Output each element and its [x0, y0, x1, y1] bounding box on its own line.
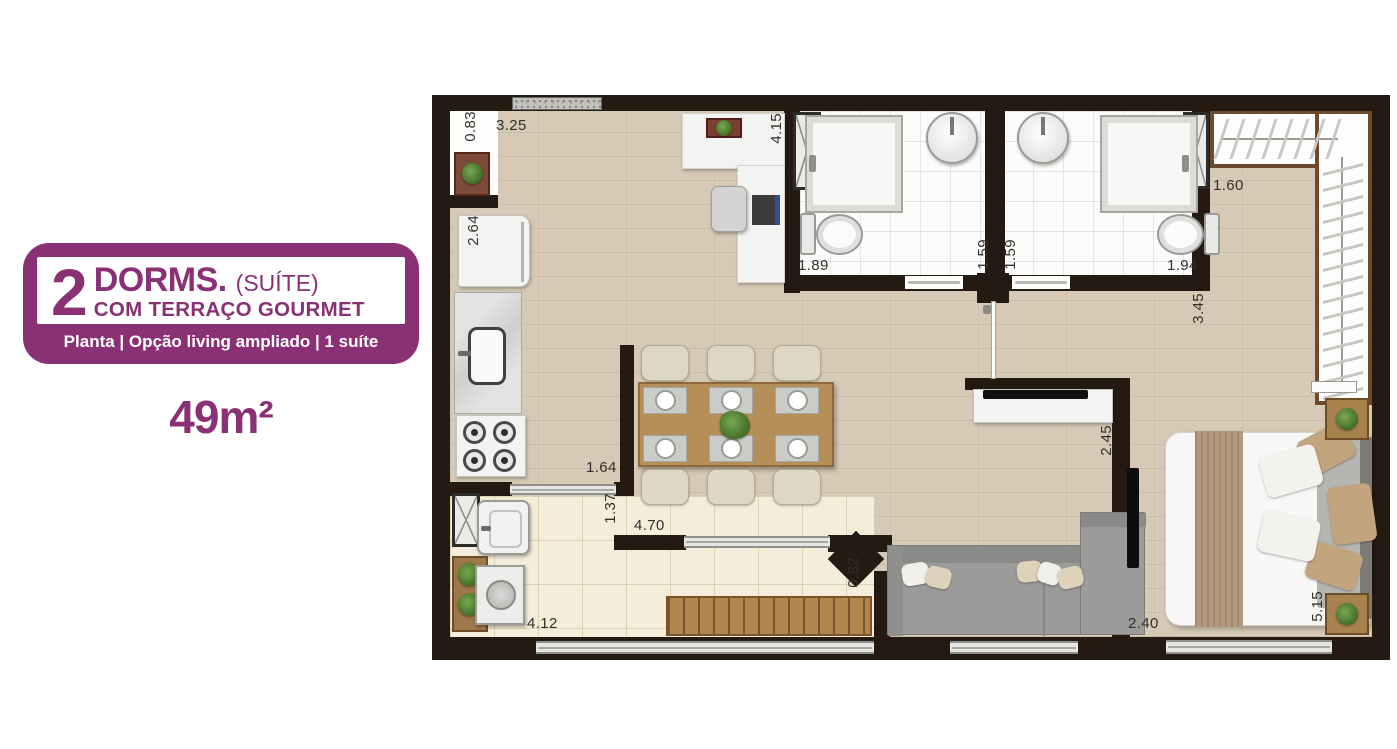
kitchen-faucet-icon	[458, 351, 471, 356]
dimension-label: 4.12	[527, 615, 558, 632]
bathroom-2-door	[1012, 276, 1070, 289]
closet-hangers-right-icon	[1323, 152, 1363, 400]
dimension-label: 3.25	[496, 117, 527, 134]
wall-right	[1372, 95, 1390, 660]
toilet-2-tank	[1204, 213, 1220, 255]
kitchen-sink	[468, 327, 506, 385]
sink-2-faucet-icon	[1041, 117, 1045, 135]
shaft-terrace-icon	[452, 493, 480, 547]
badge-title-box: 2 DORMS. (SUÍTE) COM TERRAÇO GOURMET	[37, 257, 405, 324]
dimension-label: 1.89	[798, 257, 829, 274]
dimension-label: 1.60	[1213, 177, 1244, 194]
wall-entry-stub	[432, 195, 498, 208]
shower-2-head-icon	[1182, 155, 1189, 172]
suite-door-handle-icon	[983, 305, 991, 314]
place-setting	[709, 435, 753, 462]
bed-runner	[1195, 431, 1243, 627]
shower-1	[805, 115, 903, 213]
floor-plan: 0.83 3.25 2.64 4.15 1.89 1.59 1.59 1.94 …	[432, 95, 1390, 660]
dimension-label: 4.70	[634, 517, 665, 534]
entry-door-threshold	[512, 97, 602, 110]
badge-caption: Planta | Opção living ampliado | 1 suíte	[37, 324, 405, 354]
nightstand-plant-icon	[1336, 408, 1358, 430]
place-setting	[643, 387, 687, 414]
table-centerpiece-icon	[720, 411, 750, 439]
badge-title-line2: COM TERRAÇO GOURMET	[94, 299, 365, 321]
kitchen-terrace-window	[510, 484, 616, 495]
wall-hall-pillar	[977, 273, 1009, 303]
closet-hangers-top-icon	[1214, 119, 1345, 159]
nightstand-plant-icon	[1336, 603, 1358, 625]
desk-plant-icon	[716, 120, 732, 136]
dorms-count: 2	[51, 264, 86, 320]
badge-title-line1: DORMS. (SUÍTE)	[94, 263, 365, 299]
living-terrace-slider	[684, 536, 830, 548]
toilet-2-bowl	[1157, 214, 1204, 255]
tv-living-icon	[983, 390, 1088, 399]
info-panel: 2 DORMS. (SUÍTE) COM TERRAÇO GOURMET Pla…	[23, 243, 419, 444]
area-label: 49m²	[23, 390, 419, 444]
wall-left	[432, 95, 450, 660]
dimension-label: 4.15	[768, 113, 785, 144]
laptop	[752, 195, 780, 225]
place-setting	[775, 435, 819, 462]
bedroom-bottom-window	[1166, 640, 1332, 654]
dining-chair	[707, 345, 755, 381]
plan-badge: 2 DORMS. (SUÍTE) COM TERRAÇO GOURMET Pla…	[23, 243, 419, 364]
stove	[456, 415, 526, 477]
toilet-1-bowl	[816, 214, 863, 255]
dining-chair	[641, 469, 689, 505]
dimension-label: 1.94	[1167, 257, 1198, 274]
dimension-label: 1.59	[1002, 239, 1019, 270]
bathroom-1-door	[905, 276, 963, 289]
dimension-label: 1.64	[586, 459, 617, 476]
living-bottom-window	[950, 641, 1078, 654]
wall-living-terrace-left	[614, 535, 686, 550]
bedroom-wall-shelf	[1311, 381, 1357, 393]
dimension-label: 0.83	[462, 111, 479, 142]
wall-dining-west	[620, 345, 634, 492]
suite-label: (SUÍTE)	[236, 270, 319, 296]
dimension-label: 1.37	[602, 493, 619, 524]
dining-chair	[641, 345, 689, 381]
washing-machine	[475, 565, 525, 625]
terrace-bottom-window	[536, 641, 874, 654]
bed-pillow	[1326, 482, 1378, 546]
place-setting	[775, 387, 819, 414]
dimension-label: 1.59	[975, 239, 992, 270]
suite-partition-door	[991, 301, 996, 379]
dimension-label: 2.64	[465, 215, 482, 246]
place-setting	[643, 435, 687, 462]
sink-1-faucet-icon	[950, 117, 954, 135]
place-setting	[709, 387, 753, 414]
entry-plant-icon	[462, 163, 483, 184]
toilet-1-tank	[800, 213, 816, 255]
dorms-label: DORMS.	[94, 261, 227, 299]
office-chair	[711, 186, 747, 232]
dimension-label: 0.82	[845, 557, 862, 588]
terrace-slat-bench	[666, 596, 872, 636]
dining-chair	[773, 469, 821, 505]
shower-1-head-icon	[809, 155, 816, 172]
dining-chair	[773, 345, 821, 381]
dimension-label: 2.45	[1098, 425, 1115, 456]
laundry-tub	[477, 500, 530, 555]
tv-bedroom-icon	[1127, 468, 1139, 568]
dimension-label: 5.15	[1309, 591, 1326, 622]
dimension-label: 2.40	[1128, 615, 1159, 632]
dining-chair	[707, 469, 755, 505]
dimension-label: 3.45	[1190, 293, 1207, 324]
